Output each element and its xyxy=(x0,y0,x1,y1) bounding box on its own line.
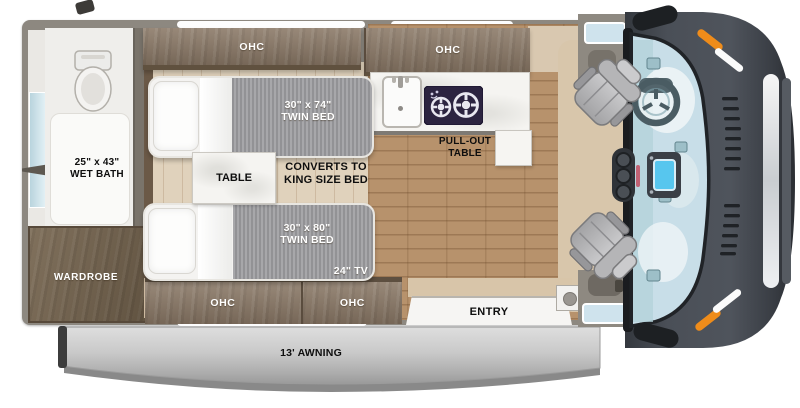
table-label: TABLE xyxy=(216,172,252,184)
cooktop-icon xyxy=(424,86,483,125)
window-top-left xyxy=(177,21,365,28)
cab-door-window-bottom xyxy=(583,304,625,323)
dinette-table: TABLE xyxy=(192,152,276,204)
bed-rear-type: TWIN BED xyxy=(255,234,359,246)
pull-out-table-label: PULL-OUT TABLE xyxy=(428,136,502,160)
toilet-icon xyxy=(68,48,118,114)
converts-label: CONVERTS TO KING SIZE BED xyxy=(277,161,375,187)
ohc-bottom-right-label: OHC xyxy=(340,297,365,309)
chrome-band xyxy=(763,74,779,288)
passenger-seat xyxy=(561,203,650,292)
awning-end-cap xyxy=(58,326,67,368)
folded-sheet xyxy=(200,78,232,156)
wet-bath-size: 25" x 43" xyxy=(53,157,141,169)
converts-line1: CONVERTS TO xyxy=(277,161,375,174)
ohc-top-right-label: OHC xyxy=(435,44,460,56)
ohc-top-right: OHC xyxy=(364,28,530,76)
pillow-icon xyxy=(148,208,196,274)
bumper-face xyxy=(782,78,791,284)
pull-out-line1: PULL-OUT xyxy=(428,136,502,148)
wet-bath-label: 25" x 43" WET BATH xyxy=(53,157,141,181)
entry-label: ENTRY xyxy=(470,306,509,318)
sink-icon xyxy=(382,76,422,128)
faucet-handle-icon xyxy=(392,76,396,83)
tv-label: 24" TV xyxy=(334,265,368,277)
faucet-handle-icon xyxy=(405,76,409,83)
converts-line2: KING SIZE BED xyxy=(277,174,375,187)
rv-floorplan: 13' AWNING 25" x 43" WET BATH WARDROBE O… xyxy=(0,0,800,408)
driver-seat xyxy=(565,46,654,135)
folded-sheet xyxy=(198,205,232,279)
ohc-bottom-left-label: OHC xyxy=(210,297,235,309)
bed-rear-size: 30" x 80" xyxy=(255,222,359,234)
cab-seats xyxy=(535,35,670,305)
faucet-icon xyxy=(398,76,403,88)
ohc-top-left-label: OHC xyxy=(239,41,264,53)
bed-front-label: 30" x 74" TWIN BED xyxy=(255,99,361,124)
ohc-top-left: OHC xyxy=(143,28,361,70)
pillow-icon xyxy=(153,81,199,151)
bed-rear-label: 30" x 80" TWIN BED xyxy=(255,222,359,247)
cup-holder-icon xyxy=(612,148,640,202)
awning xyxy=(50,320,610,400)
ohc-bottom-left: OHC xyxy=(145,282,301,324)
pull-out-line2: TABLE xyxy=(428,148,502,160)
wet-bath-name: WET BATH xyxy=(53,169,141,181)
rear-door-window xyxy=(29,92,46,208)
bed-front-type: TWIN BED xyxy=(255,111,361,123)
awning-label: 13' AWNING xyxy=(256,347,366,359)
bed-front-size: 30" x 74" xyxy=(255,99,361,111)
ohc-bottom-right: OHC xyxy=(301,282,402,324)
roof-latch-icon xyxy=(75,0,95,15)
ohc-bottom: OHC OHC xyxy=(145,277,402,324)
drain-icon xyxy=(398,106,403,111)
wardrobe-label: WARDROBE xyxy=(33,272,139,284)
